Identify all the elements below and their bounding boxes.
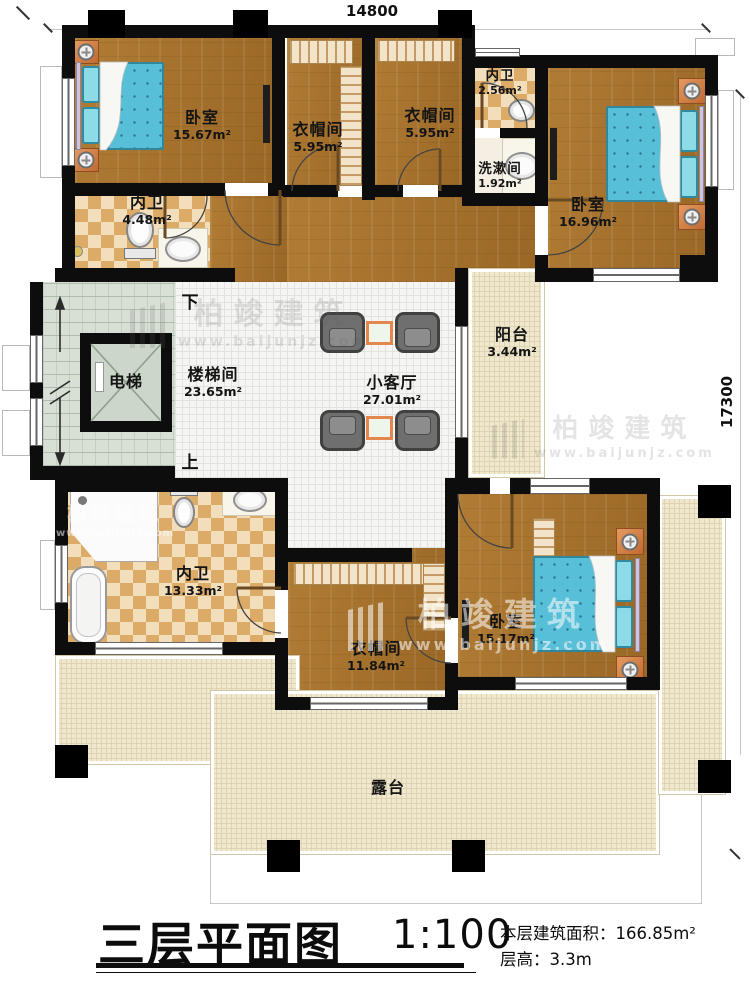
bed-mattress [606,106,678,202]
watermark-logo-icon [22,507,46,537]
room-name: 电梯 [109,372,143,391]
wardrobe-shelf [377,40,455,62]
room-name: 衣帽间 [404,106,455,125]
window [30,398,43,446]
column [55,745,88,778]
room-name: 内卫 [164,564,222,583]
room-name: 小客厅 [363,373,421,392]
wardrobe-shelf [293,563,435,585]
bed-pillow [680,110,698,152]
bathtub [70,566,107,644]
room-label-washroom: 洗漱间 1.92m² [478,161,522,190]
room-name: 衣帽间 [347,639,405,658]
lamp-icon [684,209,701,226]
bed-pillow [82,66,100,103]
window [95,642,223,655]
room-label-stairwell: 楼梯间 23.65m² [184,365,242,399]
window [593,268,680,282]
room-area: 15.67m² [173,127,231,142]
nightstand [678,204,706,230]
wall [287,548,412,562]
window [705,95,718,187]
room-label-living: 小客厅 27.01m² [363,373,421,407]
wall [275,478,288,590]
room-area: 27.01m² [363,392,421,407]
lamp-icon [78,152,95,169]
wardrobe-shelf [423,563,445,631]
room-label-bath-tl: 内卫 4.48m² [122,193,171,227]
window [62,78,75,166]
column [698,760,731,793]
room-name: 卧室 [173,108,231,127]
dimension-width: 14800 [346,2,398,20]
floorplan-canvas: 14800 17300 [0,0,750,991]
wall [283,185,338,197]
lamp-icon [78,44,95,61]
armchair [320,410,365,451]
wardrobe-shelf [289,40,353,64]
room-label-bath-tm: 内卫 2.56m² [478,68,521,97]
wall [272,25,285,188]
window [530,478,590,494]
bed-headboard [635,558,640,652]
floor-terrace-right [658,495,726,795]
column [452,840,485,872]
side-table [366,416,393,440]
eave-line [210,903,702,904]
nightstand [678,78,706,104]
floor-area-label: 本层建筑面积： [500,924,616,943]
wall [462,55,475,205]
room-area: 13.33m² [164,583,222,598]
floor-terrace-main [210,690,660,855]
window [515,677,627,690]
dim-line-right [740,95,741,755]
window-sill [2,345,30,391]
chair-seat [404,328,431,347]
tv-panel [263,85,270,143]
window-sill [40,66,62,178]
wall [535,68,548,200]
room-name: 露台 [371,778,405,797]
room-area: 23.65m² [184,384,242,399]
dimension-height: 17300 [718,376,736,428]
lamp-icon [684,83,701,100]
toilet-icon [173,497,195,528]
wall [535,255,548,282]
room-name: 洗漱间 [478,161,522,177]
nightstand [73,40,99,64]
eave-line [701,795,702,903]
eave-line [210,855,211,903]
lamp-icon [622,661,639,678]
bathtub-inner [76,573,101,637]
chair-seat [329,416,356,435]
floor-area-info: 本层建筑面积：166.85m² [500,920,696,944]
floor-height-label: 层高： [500,950,550,969]
room-label-closet-tl: 衣帽间 5.95m² [292,120,343,154]
title-underline-thin [96,972,476,973]
bed-mattress [100,62,164,150]
column [267,840,300,872]
room-area: 11.84m² [347,658,405,673]
window [55,545,68,603]
window-sill [718,90,734,190]
room-area: 5.95m² [292,139,343,154]
side-table [366,321,393,345]
room-label-bedroom-tr: 卧室 16.96m² [559,195,617,229]
room-label-closet-tm: 衣帽间 5.95m² [404,106,455,140]
room-area: 3.44m² [487,344,536,359]
room-area: 15.17m² [477,631,535,646]
room-name: 卧室 [477,612,535,631]
floor-area-value: 166.85m² [616,924,696,943]
window [310,697,428,710]
toilet-icon [508,99,535,122]
room-label-bedroom-br: 卧室 15.17m² [477,612,535,646]
lamp-icon [622,533,639,550]
dim-tick [43,23,53,33]
sink-icon [165,236,201,262]
wall [455,268,468,326]
room-name: 阳台 [487,325,536,344]
tv-panel [462,600,469,648]
floor-height-value: 3.3m [550,950,592,969]
room-label-terrace: 露台 [371,778,405,797]
elevator-panel [95,362,104,392]
bed-headboard [699,106,704,202]
bed-pillow [680,156,698,198]
armchair [320,312,365,353]
wall [445,494,458,618]
column [698,485,731,518]
room-name: 衣帽间 [292,120,343,139]
column [233,10,268,38]
wall [55,268,235,282]
window [30,335,43,383]
dim-tick [701,23,711,33]
wall [647,478,660,690]
room-area: 16.96m² [559,214,617,229]
room-label-closet-b: 衣帽间 11.84m² [347,639,405,673]
wall [445,663,458,710]
bed-pillow [615,560,633,602]
room-area: 2.56m² [478,84,521,97]
room-label-balcony: 阳台 3.44m² [487,325,536,359]
wardrobe-shelf [533,518,555,558]
room-name: 内卫 [122,193,171,212]
wall [680,255,718,282]
stair-up-label: 上 [182,448,199,473]
window [455,326,468,438]
wall [362,25,375,200]
room-area: 5.95m² [404,125,455,140]
plan-scale: 1:100 [392,912,512,958]
wall [445,478,490,494]
column [438,10,472,38]
chair-seat [404,416,431,435]
bed-pillow [615,606,633,648]
room-area: 4.48m² [122,212,171,227]
room-name: 楼梯间 [184,365,242,384]
dim-tick [16,6,30,20]
bed-pillow [82,107,100,144]
window-sill [2,410,30,456]
room-name: 卧室 [559,195,617,214]
shower-head-icon [78,496,87,505]
nightstand [73,148,99,172]
tv-panel [550,128,557,180]
nightstand [616,528,644,555]
bed-mattress [533,556,615,652]
room-area: 1.92m² [478,177,522,190]
room-label-elevator: 电梯 [109,372,143,391]
watermark-brand: 柏竣建筑 [552,416,696,442]
armchair [395,312,440,353]
floor-balcony [468,268,545,478]
room-name: 内卫 [478,68,521,84]
column [88,10,125,38]
stair-down-label: 下 [182,288,199,313]
wall [375,185,403,197]
chair-seat [329,328,356,347]
wall [548,268,593,282]
floor-height-info: 层高：3.3m [500,946,592,970]
armchair [395,410,440,451]
toilet-tank [124,248,156,259]
title-underline [96,963,464,968]
window-sill [695,38,735,56]
window [475,48,520,57]
window-sill [40,540,55,610]
watermark-url: www.baijunjz.com [534,446,715,461]
wall [55,478,288,492]
bed-headboard [76,62,81,150]
dim-tick [729,848,740,859]
floor-living-south [287,478,445,548]
room-label-bedroom-tl: 卧室 15.67m² [173,108,231,142]
room-label-bath-bl: 内卫 13.33m² [164,564,222,598]
